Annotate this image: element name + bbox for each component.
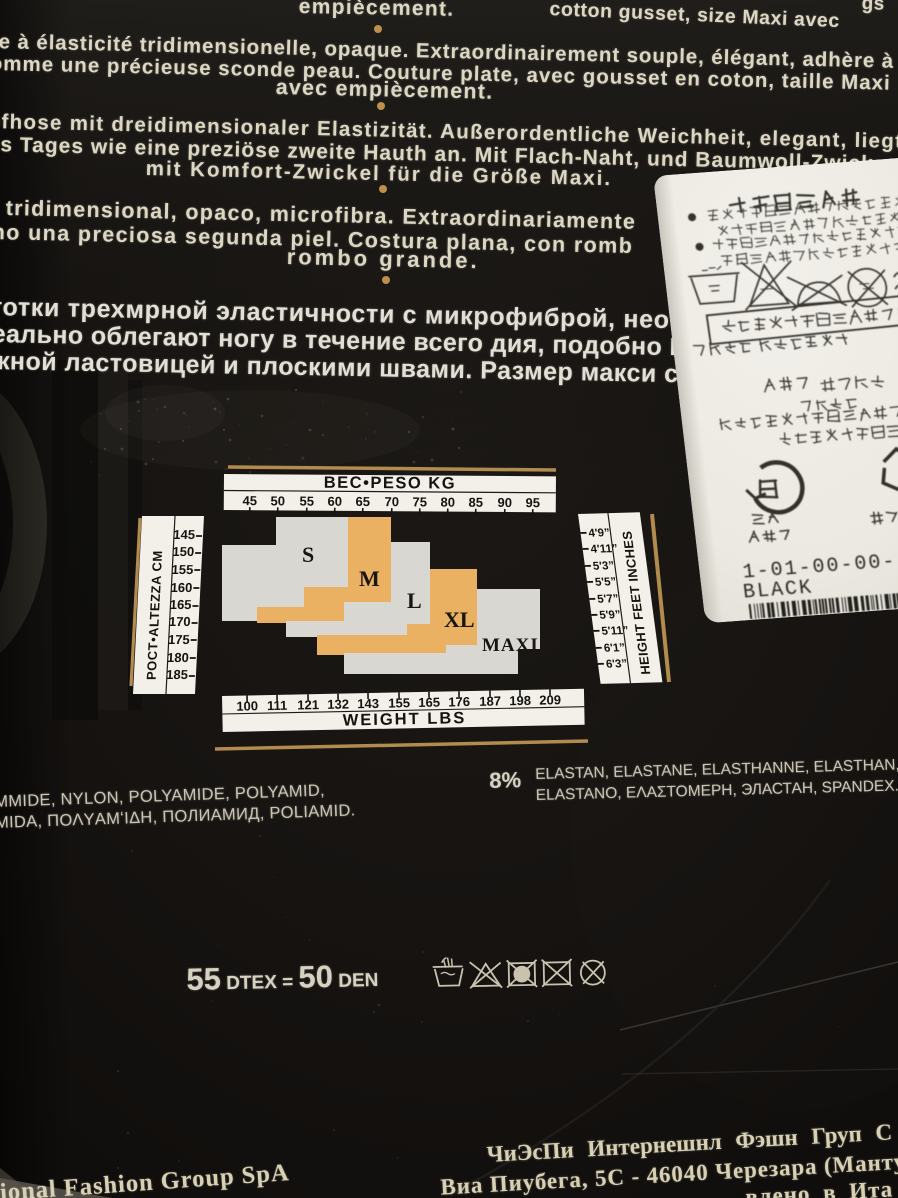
svg-text:4'9”: 4'9” [588,527,611,540]
svg-text:175: 175 [168,632,190,647]
svg-text:5'5”: 5'5” [594,576,617,589]
svg-text:75: 75 [413,494,428,509]
svg-text:180: 180 [167,650,189,665]
svg-text:90: 90 [498,495,513,510]
svg-text:80: 80 [441,495,456,510]
svg-text:MAXI: MAXI [482,635,539,656]
svg-text:45: 45 [243,493,258,508]
svg-text:155: 155 [171,562,193,577]
svg-text:85: 85 [469,495,484,510]
svg-text:5'7”: 5'7” [597,593,620,606]
svg-text:165: 165 [169,597,191,612]
svg-text:170: 170 [169,614,191,629]
svg-text:4'11”: 4'11” [590,543,619,556]
svg-text:50: 50 [271,493,286,508]
svg-text:5'9”: 5'9” [599,609,622,622]
svg-text:L: L [407,588,422,613]
svg-text:6'1”: 6'1” [603,642,626,655]
svg-text:55: 55 [300,494,315,509]
svg-text:M: M [359,566,380,591]
svg-text:S: S [302,542,314,567]
svg-text:95: 95 [526,495,541,510]
svg-text:160: 160 [170,580,192,595]
svg-text:70: 70 [385,494,400,509]
svg-text:5'3”: 5'3” [592,560,615,573]
svg-text:XL: XL [444,607,475,632]
svg-text:BEC•PESO KG: BEC•PESO KG [324,474,456,493]
svg-text:6'3”: 6'3” [605,658,628,671]
svg-text:WEIGHT LBS: WEIGHT LBS [343,709,467,729]
svg-text:60: 60 [328,494,343,509]
svg-text:65: 65 [356,494,371,509]
svg-text:5'11”: 5'11” [601,625,630,638]
svg-text:145: 145 [173,527,195,542]
svg-text:150: 150 [172,544,194,559]
svg-text:185: 185 [166,667,188,682]
